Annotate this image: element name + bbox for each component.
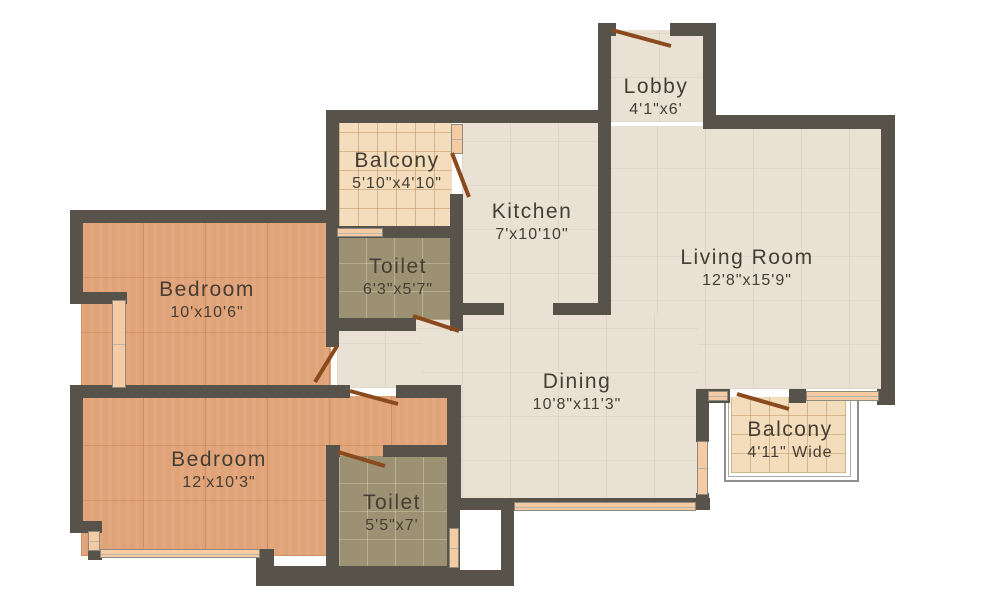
room-dims: 4'1"x6' <box>624 101 689 119</box>
room-name: Living Room <box>680 246 813 270</box>
door-swing-layer <box>0 0 1000 600</box>
room-name: Kitchen <box>492 200 573 224</box>
room-dims: 12'x10'3" <box>171 474 267 492</box>
room-dims: 10'8"x11'3" <box>533 396 622 414</box>
door-toilet-upper <box>413 316 459 331</box>
room-label-bedroom-upper: Bedroom 10'x10'6" <box>159 278 255 322</box>
room-name: Dining <box>533 370 622 394</box>
room-label-living-room: Living Room 12'8"x15'9" <box>680 246 813 290</box>
room-label-toilet-lower: Toilet 5'5"x7' <box>363 491 421 535</box>
room-name: Bedroom <box>171 448 267 472</box>
floor-plan: Lobby 4'1"x6' Balcony 5'10"x4'10" Kitche… <box>0 0 1000 600</box>
room-name: Lobby <box>624 75 689 99</box>
room-label-lobby: Lobby 4'1"x6' <box>624 75 689 119</box>
room-dims: 12'8"x15'9" <box>680 272 813 290</box>
door-balcony-right <box>737 394 789 409</box>
room-dims: 6'3"x5'7" <box>363 281 433 299</box>
room-label-bedroom-lower: Bedroom 12'x10'3" <box>171 448 267 492</box>
room-name: Balcony <box>352 149 442 173</box>
room-dims: 5'5"x7' <box>363 517 421 535</box>
room-name: Balcony <box>747 418 832 442</box>
room-name: Toilet <box>363 255 433 279</box>
door-lobby-entrance <box>612 30 671 46</box>
door-bedroom-lower <box>350 391 398 404</box>
door-toilet-lower <box>338 452 385 466</box>
room-label-balcony-right: Balcony 4'11" Wide <box>747 418 832 462</box>
room-label-toilet-upper: Toilet 6'3"x5'7" <box>363 255 433 299</box>
door-balcony-top <box>452 153 469 197</box>
room-dims: 5'10"x4'10" <box>352 175 442 193</box>
room-dims: 4'11" Wide <box>747 444 832 462</box>
room-name: Bedroom <box>159 278 255 302</box>
door-bedroom-upper <box>315 346 337 382</box>
room-dims: 7'x10'10" <box>492 226 573 244</box>
room-dims: 10'x10'6" <box>159 304 255 322</box>
room-name: Toilet <box>363 491 421 515</box>
room-label-dining: Dining 10'8"x11'3" <box>533 370 622 414</box>
room-label-balcony-top: Balcony 5'10"x4'10" <box>352 149 442 193</box>
room-label-kitchen: Kitchen 7'x10'10" <box>492 200 573 244</box>
